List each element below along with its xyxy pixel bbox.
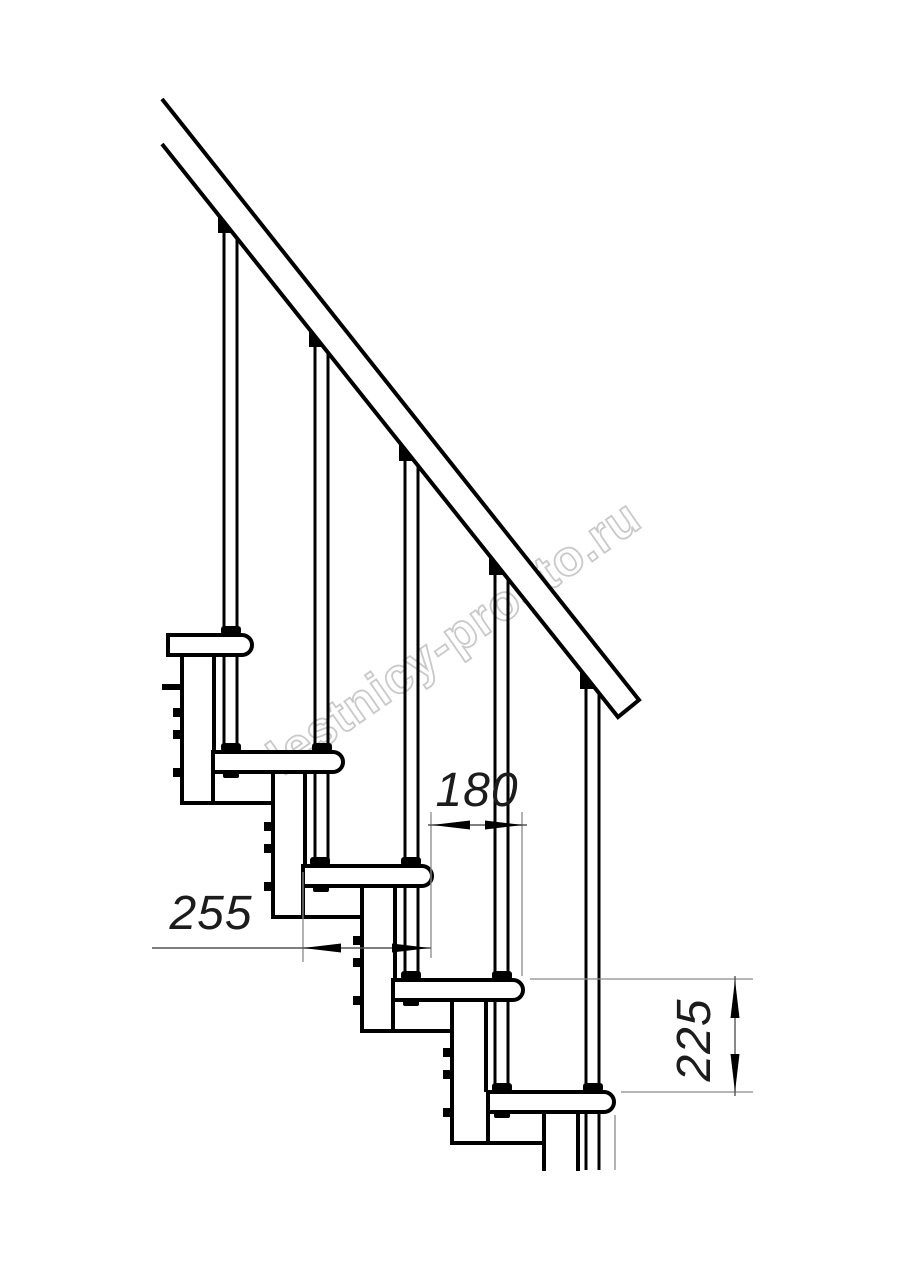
- dimension-180: 180: [428, 764, 527, 976]
- bolt: [173, 730, 182, 739]
- dimension-label-180: 180: [435, 764, 518, 817]
- staircase-drawing: lestnicy-prosto.ru: [0, 0, 914, 1280]
- arrowhead-right-icon: [485, 821, 523, 830]
- staircase-drawing-page: lestnicy-prosto.ru: [0, 0, 914, 1280]
- arrowhead-up-icon: [731, 980, 740, 1018]
- bolt: [264, 882, 273, 891]
- tread-1: [168, 635, 252, 655]
- tread-2: [213, 752, 343, 772]
- tread-collar: [310, 857, 330, 866]
- stringer-module-1: [180, 653, 273, 803]
- bolt: [173, 708, 182, 717]
- tread-collar: [312, 743, 332, 752]
- tread-collar: [221, 626, 241, 635]
- bolt: [443, 1108, 452, 1117]
- stringer-module-4: [450, 998, 544, 1143]
- bolt: [353, 936, 362, 945]
- arrowhead-left-icon: [432, 821, 470, 830]
- stringer-module-5: [544, 1110, 578, 1171]
- dimension-225: 225: [530, 976, 753, 1170]
- baluster-rod-3: [405, 440, 418, 988]
- tread-3: [303, 866, 432, 886]
- baluster-rod-1: [224, 210, 237, 760]
- baluster-rod-2: [315, 325, 328, 874]
- arrowhead-right-icon: [392, 944, 430, 953]
- arrowhead-left-icon: [303, 944, 341, 953]
- bolt: [443, 1070, 452, 1079]
- tread-nut: [403, 998, 419, 1006]
- bolt: [443, 1048, 452, 1057]
- tread-collar: [401, 971, 421, 980]
- dimension-label-225: 225: [668, 998, 721, 1082]
- handrail: [162, 99, 639, 717]
- bracket-tab: [162, 684, 182, 690]
- tread-collar: [221, 743, 241, 752]
- arrowhead-down-icon: [731, 1054, 740, 1092]
- bolt: [264, 844, 273, 853]
- tread-4: [393, 980, 523, 1000]
- bolt: [353, 958, 362, 967]
- tread-nut: [494, 1110, 510, 1118]
- tread-collar: [492, 1083, 512, 1092]
- tread-collar: [401, 857, 421, 866]
- bolt: [264, 822, 273, 831]
- bolt: [353, 996, 362, 1005]
- tread-nut: [313, 884, 329, 892]
- tread-5: [488, 1092, 614, 1112]
- tread-collar: [583, 1083, 603, 1092]
- dimension-label-255: 255: [168, 887, 252, 940]
- tread-nut: [223, 770, 239, 778]
- tread-collar: [492, 971, 512, 980]
- bolt: [173, 768, 182, 777]
